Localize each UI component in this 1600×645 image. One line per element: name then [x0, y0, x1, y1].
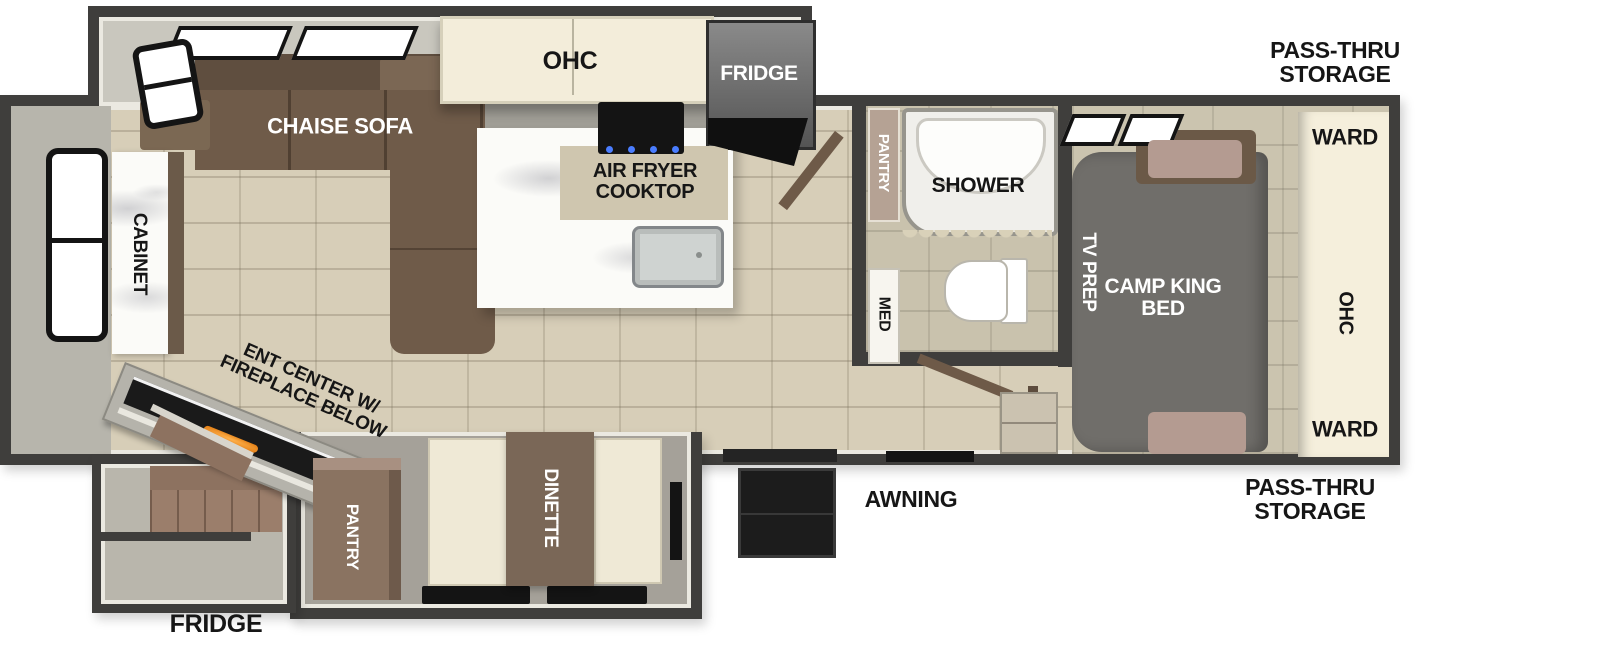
kitchen-pantry-label: PANTRY — [343, 504, 361, 570]
kitchen-sink — [632, 226, 724, 288]
dinette-label: DINETTE — [540, 468, 560, 547]
rear-cabinet-side — [168, 152, 184, 354]
dinette-window — [422, 586, 530, 604]
bed-pillow — [1148, 412, 1246, 454]
kitchen-pantry-side — [389, 470, 401, 600]
awning-label: AWNING — [865, 488, 958, 512]
shower — [902, 108, 1058, 236]
dinette-bench — [594, 438, 662, 584]
med-label: MED — [875, 297, 892, 332]
entry-door-threshold — [723, 449, 837, 462]
bottom-wall-window — [886, 451, 974, 462]
kitchen-fridge-label: FRIDGE — [720, 63, 798, 85]
rear-side-window — [46, 148, 108, 342]
air-fryer-cooktop-label: AIR FRYER COOKTOP — [593, 161, 697, 203]
cooktop-burners — [606, 146, 613, 153]
rv-floorplan-diagram: CHAISE SOFA CABINET ENT CENTER W/ FIREPL… — [0, 0, 1600, 645]
ward-top-label: WARD — [1312, 127, 1378, 150]
stairs — [150, 490, 282, 532]
dinette-window — [547, 586, 647, 604]
bathroom-wall-left — [852, 106, 866, 360]
skylight-window — [291, 26, 419, 60]
shower-label: SHOWER — [932, 175, 1025, 197]
window-divider — [144, 77, 192, 90]
bedroom-steps — [1000, 392, 1058, 454]
cabinet-label: CABINET — [129, 213, 149, 295]
tv-prep-label: TV PREP — [1078, 232, 1098, 311]
wardrobe-strip — [1298, 112, 1389, 457]
pass-thru-storage-top-label: PASS-THRU STORAGE — [1270, 39, 1400, 87]
compartment-divider-wall — [101, 532, 251, 541]
entry-steps — [738, 468, 836, 558]
window-divider — [52, 238, 102, 243]
kitchen-ohc-label: OHC — [543, 48, 598, 74]
bed-pillow — [1148, 140, 1242, 178]
sink-drain — [696, 252, 702, 258]
exterior-fridge-label: FRIDGE — [170, 611, 263, 637]
toilet-bowl — [944, 260, 1008, 322]
camp-king-bed-label: CAMP KING BED — [1104, 276, 1221, 320]
chaise-sofa-label: CHAISE SOFA — [267, 116, 413, 139]
dinette-side-window — [670, 482, 682, 560]
bath-pantry-label: PANTRY — [875, 134, 891, 192]
ward-bottom-label: WARD — [1312, 419, 1378, 442]
pass-thru-storage-bottom-label: PASS-THRU STORAGE — [1245, 476, 1375, 524]
shower-curtain — [902, 230, 1052, 244]
bedroom-ohc-label: OHC — [1335, 291, 1356, 335]
dinette-bench — [428, 438, 510, 586]
